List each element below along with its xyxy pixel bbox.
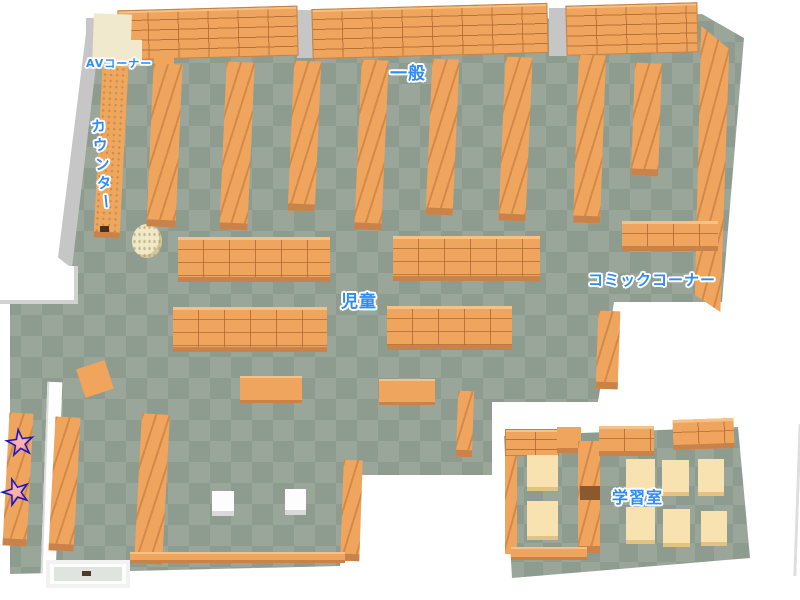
children-bookshelf — [173, 307, 327, 352]
display-rack-cylinder — [132, 224, 162, 258]
study-shelf — [511, 547, 587, 560]
comic-shelf — [596, 311, 621, 390]
stool — [285, 489, 306, 515]
study-table — [662, 460, 689, 496]
study-divider-gap — [580, 486, 600, 500]
study-shelf — [505, 429, 559, 456]
area-label-children: 児童 — [341, 287, 377, 312]
study-table — [626, 507, 655, 544]
bookshelf — [340, 460, 363, 562]
study-table — [663, 509, 690, 547]
library-floor-map: AVコーナー 一般 カウンター 児童 コミックコーナー 学習室 — [0, 0, 800, 600]
area-label-comic-corner: コミックコーナー — [588, 269, 716, 290]
low-shelf — [379, 379, 435, 405]
wall-pillar — [549, 8, 567, 56]
study-wall-shelf — [672, 418, 734, 450]
wall-pillar — [297, 10, 313, 58]
children-bookshelf — [393, 236, 540, 281]
wall-bookshelf — [311, 3, 548, 59]
comic-shelf — [622, 221, 718, 251]
bookshelf — [631, 63, 662, 177]
wall-bookshelf — [565, 2, 698, 55]
entrance-door — [46, 560, 130, 588]
area-label-study-room: 学習室 — [612, 484, 663, 508]
study-shelf — [505, 444, 517, 554]
study-table — [527, 501, 558, 540]
children-bookshelf — [387, 306, 512, 350]
study-table — [701, 511, 727, 546]
area-label-general: 一般 — [390, 59, 426, 84]
area-label-av-corner: AVコーナー — [86, 55, 152, 71]
wall-protrusion — [0, 266, 78, 304]
wall-bookshelf — [117, 6, 298, 61]
stool — [212, 491, 234, 516]
counter-mark — [100, 226, 109, 232]
wall-sliver — [783, 424, 800, 576]
door-handle — [82, 571, 91, 576]
study-table — [698, 459, 724, 496]
study-wall-shelf — [599, 426, 654, 456]
low-shelf — [240, 376, 302, 403]
study-table — [527, 455, 558, 491]
children-bookshelf — [178, 237, 330, 282]
low-shelf — [130, 552, 345, 563]
bookshelf — [456, 391, 474, 458]
